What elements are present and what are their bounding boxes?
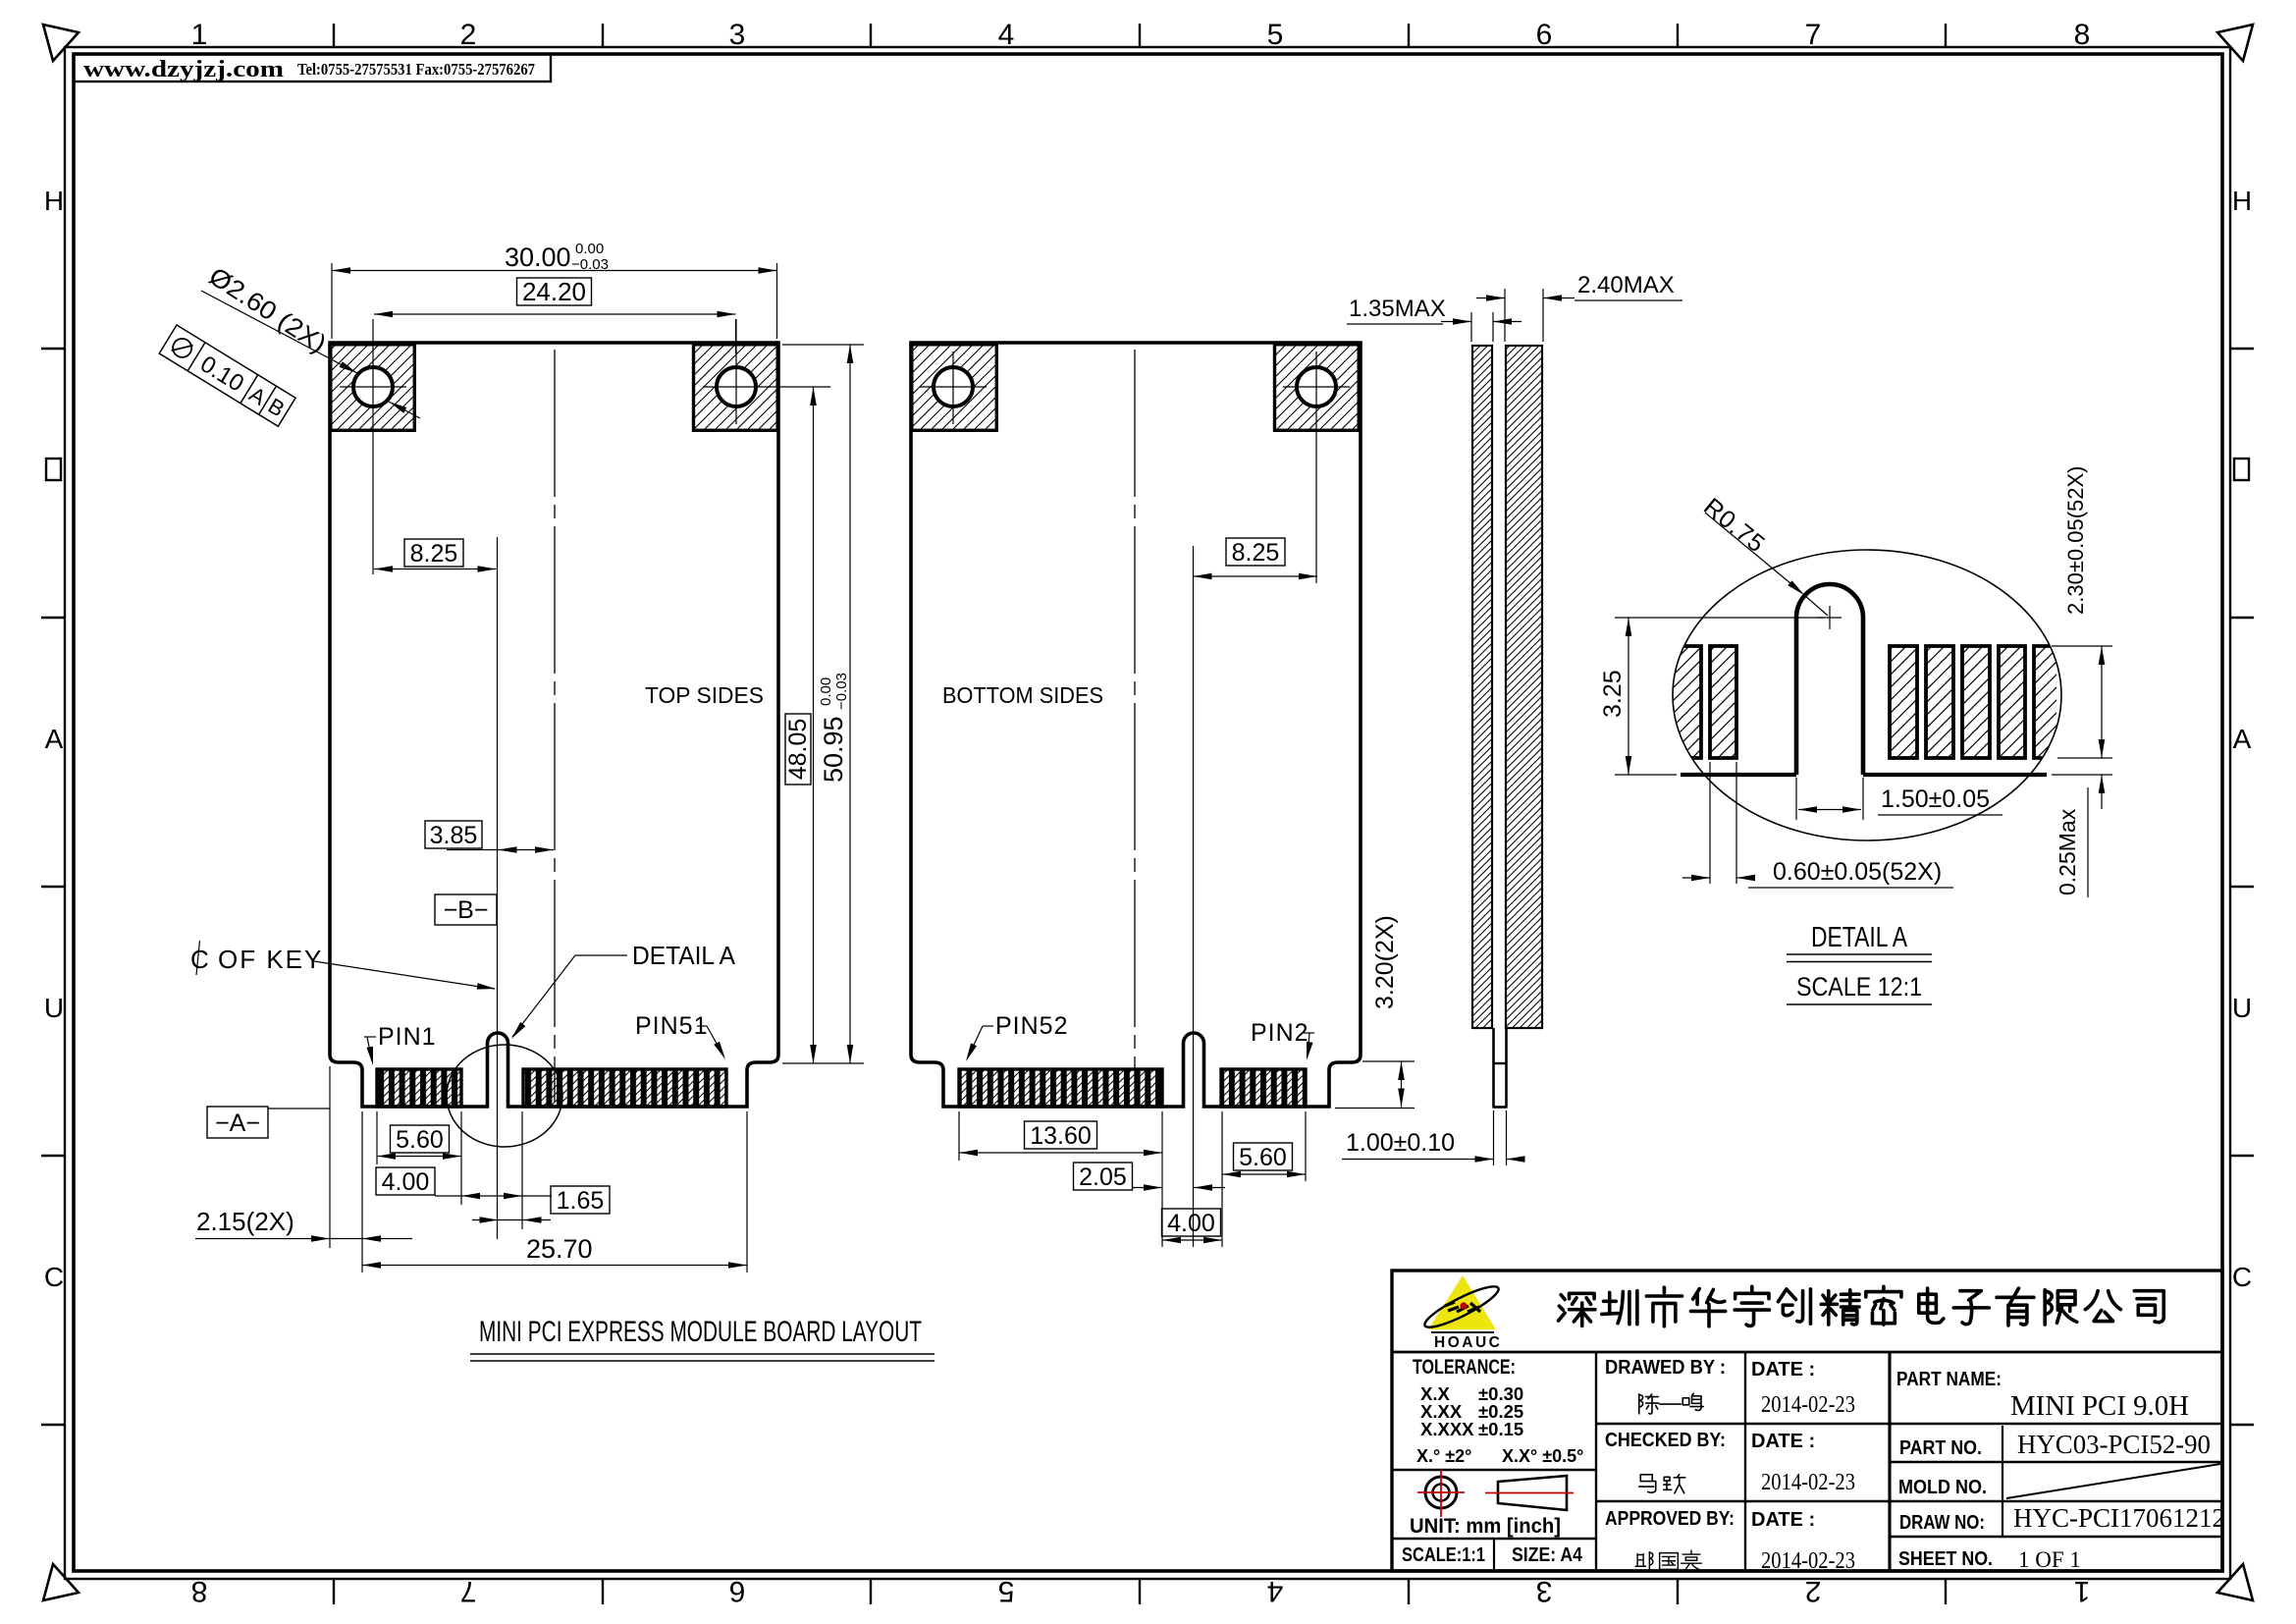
svg-text:MINI PCI EXPRESS MODULE BOARD: MINI PCI EXPRESS MODULE BOARD LAYOUT	[479, 1316, 922, 1348]
svg-text:SCALE 12:1: SCALE 12:1	[1796, 972, 1922, 1001]
svg-text:8.25: 8.25	[1232, 539, 1280, 567]
svg-text:±0.15: ±0.15	[1478, 1419, 1523, 1439]
svg-text:C: C	[2232, 1262, 2252, 1292]
svg-text:0.25Max: 0.25Max	[2055, 808, 2080, 895]
svg-text:5.60: 5.60	[1239, 1144, 1287, 1171]
svg-text:A: A	[2233, 724, 2252, 754]
svg-text:−0.03: −0.03	[833, 673, 850, 710]
svg-text:CHECKED BY:: CHECKED BY:	[1605, 1430, 1726, 1451]
svg-text:0.00: 0.00	[575, 241, 604, 257]
svg-text:2: 2	[460, 19, 477, 51]
svg-text:3: 3	[729, 19, 746, 51]
svg-text:48.05: 48.05	[784, 719, 812, 781]
svg-text:4.00: 4.00	[1167, 1210, 1215, 1237]
svg-text:2014-02-23: 2014-02-23	[1761, 1470, 1855, 1495]
svg-text:DETAIL A: DETAIL A	[1811, 922, 1908, 953]
svg-text:4: 4	[998, 19, 1015, 51]
svg-text:5: 5	[998, 1575, 1015, 1607]
svg-text:2.15(2X): 2.15(2X)	[196, 1207, 294, 1236]
svg-text:24.20: 24.20	[522, 277, 586, 306]
svg-text:1: 1	[2074, 1575, 2091, 1607]
svg-text:8: 8	[2074, 19, 2091, 51]
svg-text:www.dzyjzj.com: www.dzyjzj.com	[83, 57, 284, 82]
svg-text:X.° ±2°: X.° ±2°	[1416, 1446, 1471, 1466]
svg-text:SHEET NO.: SHEET NO.	[1898, 1548, 1993, 1570]
svg-text:0.00: 0.00	[818, 677, 834, 706]
svg-text:25.70: 25.70	[526, 1234, 593, 1264]
svg-text:8: 8	[191, 1575, 208, 1607]
svg-text:0.60±0.05(52X): 0.60±0.05(52X)	[1773, 858, 1942, 886]
svg-text:2: 2	[1805, 1575, 1822, 1607]
svg-text:BOTTOM SIDES: BOTTOM SIDES	[942, 682, 1103, 708]
svg-text:4.00: 4.00	[382, 1168, 430, 1196]
svg-text:−A−: −A−	[215, 1110, 260, 1137]
svg-text:MINI PCI 9.0H: MINI PCI 9.0H	[2010, 1390, 2189, 1422]
svg-text:1.50±0.05: 1.50±0.05	[1881, 785, 1990, 813]
svg-text:−B−: −B−	[444, 896, 489, 924]
svg-text:1.00±0.10: 1.00±0.10	[1346, 1129, 1455, 1157]
svg-text:2.40MAX: 2.40MAX	[1577, 272, 1675, 298]
svg-text:U: U	[44, 993, 64, 1023]
svg-text:8.25: 8.25	[410, 540, 458, 568]
svg-text:30.00: 30.00	[505, 243, 571, 272]
svg-text:DETAIL A: DETAIL A	[632, 941, 736, 970]
svg-text:OF KEY: OF KEY	[218, 945, 323, 974]
svg-text:2.05: 2.05	[1079, 1164, 1127, 1191]
svg-text:HYC-PCI17061212: HYC-PCI17061212	[2013, 1503, 2225, 1533]
svg-text:50.95: 50.95	[819, 716, 848, 783]
svg-text:6: 6	[1536, 19, 1553, 51]
svg-text:A: A	[45, 724, 64, 754]
svg-text:Tel:0755-27575531 Fax:0755-27: Tel:0755-27575531 Fax:0755-27576267	[297, 60, 535, 79]
svg-text:5.60: 5.60	[396, 1126, 444, 1154]
svg-text:DATE :: DATE :	[1751, 1431, 1815, 1452]
svg-text:UNIT: mm [inch]: UNIT: mm [inch]	[1410, 1515, 1561, 1538]
svg-text:7: 7	[1805, 19, 1822, 51]
svg-text:DRAWED BY :: DRAWED BY :	[1605, 1357, 1726, 1379]
svg-text:SCALE:1:1: SCALE:1:1	[1402, 1544, 1485, 1566]
svg-text:MOLD NO.: MOLD NO.	[1898, 1477, 1987, 1498]
svg-text:HYC03-PCI52-90: HYC03-PCI52-90	[2017, 1430, 2211, 1459]
svg-text:3.20(2X): 3.20(2X)	[1371, 915, 1399, 1009]
svg-text:H: H	[2232, 186, 2252, 216]
svg-text:TOP SIDES: TOP SIDES	[645, 682, 764, 708]
svg-text:2014-02-23: 2014-02-23	[1761, 1548, 1855, 1574]
svg-text:1 OF 1: 1 OF 1	[2018, 1547, 2081, 1572]
svg-text:C: C	[190, 945, 209, 974]
svg-text:H: H	[44, 186, 64, 216]
svg-text:2.30±0.05(52X): 2.30±0.05(52X)	[2063, 465, 2088, 615]
svg-text:PART NO.: PART NO.	[1899, 1437, 1982, 1459]
svg-text:7: 7	[460, 1575, 477, 1607]
svg-text:PIN1: PIN1	[378, 1023, 437, 1051]
svg-text:PART NAME:: PART NAME:	[1896, 1369, 2002, 1390]
svg-text:DATE :: DATE :	[1751, 1359, 1815, 1380]
svg-text:HOAUC: HOAUC	[1434, 1334, 1502, 1351]
svg-text:2014-02-23: 2014-02-23	[1761, 1392, 1855, 1418]
svg-text:TOLERANCE:: TOLERANCE:	[1413, 1356, 1516, 1379]
svg-text:3: 3	[1536, 1575, 1553, 1607]
svg-text:DATE :: DATE :	[1751, 1509, 1815, 1531]
svg-text:APPROVED BY:: APPROVED BY:	[1605, 1508, 1735, 1530]
svg-text:C: C	[44, 1262, 64, 1292]
svg-text:DRAW NO:: DRAW NO:	[1899, 1512, 1985, 1534]
svg-text:4: 4	[1267, 1575, 1284, 1607]
svg-text:1.65: 1.65	[557, 1187, 605, 1215]
svg-text:6: 6	[729, 1575, 746, 1607]
svg-text:X.X° ±0.5°: X.X° ±0.5°	[1502, 1446, 1583, 1466]
svg-text:1.35MAX: 1.35MAX	[1349, 296, 1446, 322]
svg-text:1: 1	[191, 19, 208, 51]
svg-text:5: 5	[1267, 19, 1284, 51]
svg-text:X.XXX: X.XXX	[1420, 1419, 1474, 1439]
svg-text:SIZE: A4: SIZE: A4	[1512, 1544, 1583, 1566]
svg-text:3.25: 3.25	[1599, 670, 1627, 718]
svg-text:13.60: 13.60	[1030, 1122, 1092, 1150]
svg-text:3.85: 3.85	[430, 822, 478, 849]
svg-text:PIN2: PIN2	[1251, 1019, 1309, 1047]
svg-text:PIN52: PIN52	[995, 1012, 1068, 1040]
svg-text:U: U	[2232, 993, 2252, 1023]
